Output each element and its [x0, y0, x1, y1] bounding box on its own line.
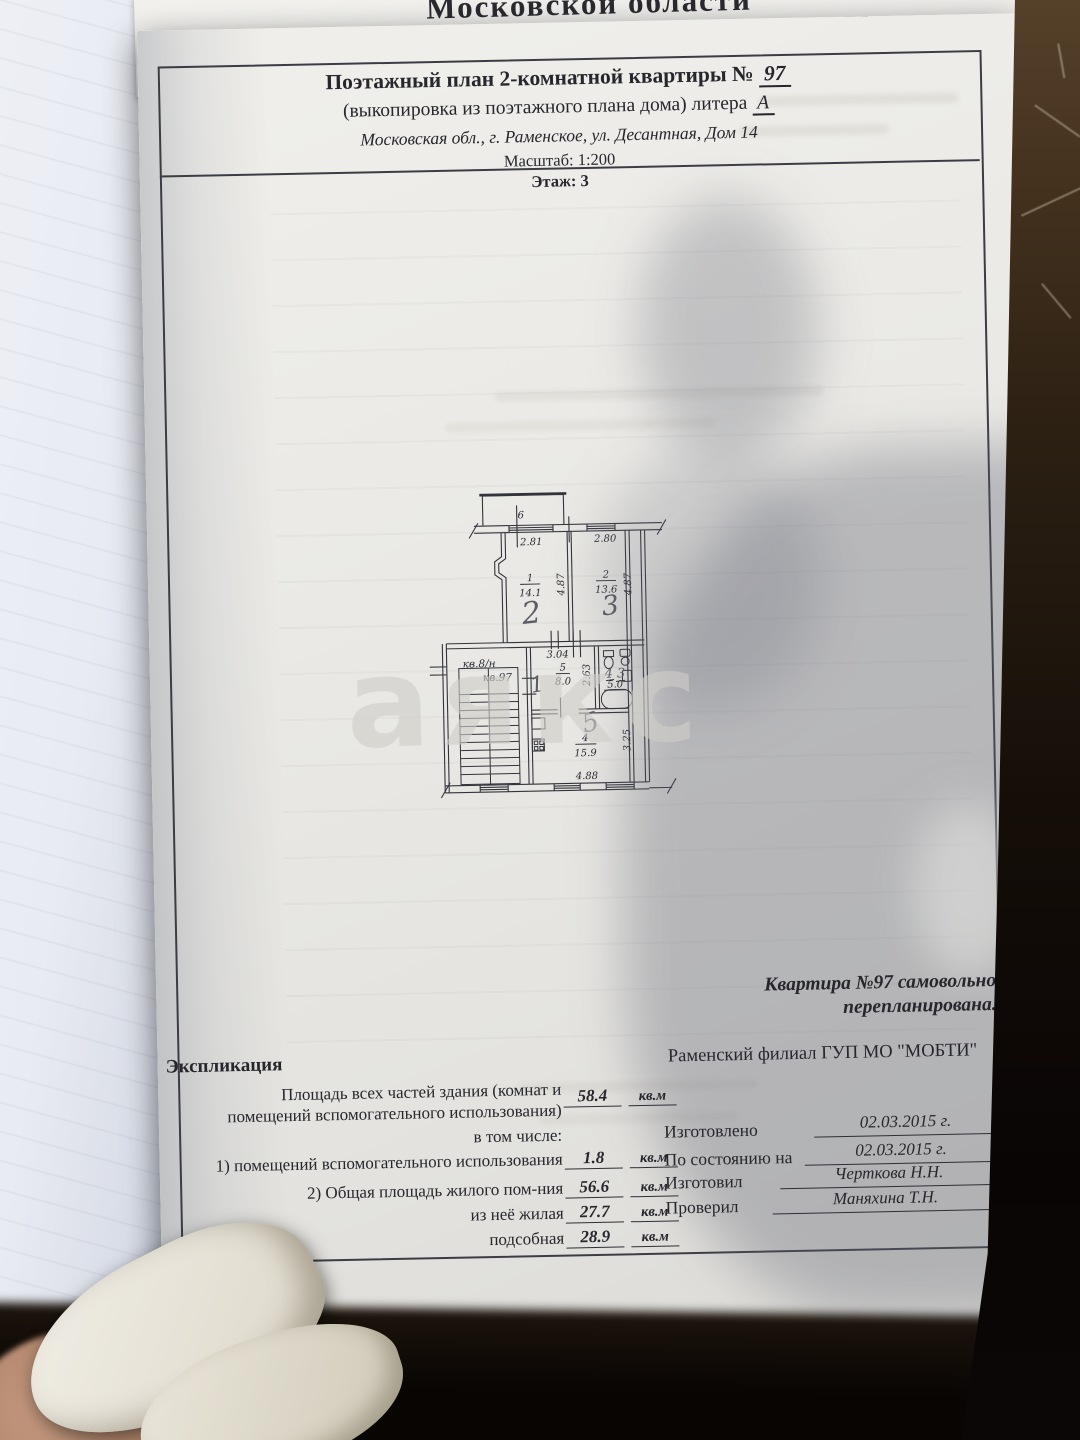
kitchen-width-dim: 4.88 — [575, 771, 598, 782]
explication-heading: Экспликация — [166, 1054, 283, 1078]
explication-row-value: 1.8 — [564, 1147, 622, 1169]
room1-height-dim: 4.87 — [556, 573, 567, 597]
room1-hand-number: 2 — [519, 595, 543, 632]
room1-width-dim: 2.81 — [519, 537, 542, 548]
apartment-number: 97 — [759, 61, 791, 88]
org-row-value: Маняхина Т.Н. — [772, 1186, 998, 1215]
explication-row-value: 56.6 — [565, 1176, 623, 1198]
replanning-note: Квартира №97 самовольно перепланирована. — [651, 969, 997, 1024]
litera-value: А — [752, 92, 774, 115]
photo-scene: Московской области Поэтажный план 2-комн… — [0, 0, 1080, 1440]
document-header: Поэтажный план 2-комнатной квартиры № 97… — [178, 57, 940, 178]
window — [480, 785, 508, 793]
explication-row-value: 58.4 — [563, 1085, 621, 1107]
org-row-value: 02.03.2015 г. — [814, 1110, 997, 1138]
room1-number: 1 — [527, 573, 534, 584]
org-row-label: Изготовлено — [664, 1118, 834, 1142]
explication-row-unit: кв.м — [628, 1087, 676, 1106]
window — [554, 783, 580, 791]
explication-row-value: 28.9 — [566, 1226, 624, 1248]
subtitle-text: (выкопировка из поэтажного плана дома) л… — [343, 93, 748, 122]
explication-row-unit: кв.м — [631, 1228, 679, 1247]
explication-row-value: 27.7 — [566, 1201, 624, 1223]
document-page: Поэтажный план 2-комнатной квартиры № 97… — [137, 13, 1043, 1342]
agency-watermark: аякс — [345, 626, 709, 777]
org-row-value: Черткова Н.Н. — [780, 1161, 998, 1189]
balcony-number: 6 — [517, 510, 524, 521]
